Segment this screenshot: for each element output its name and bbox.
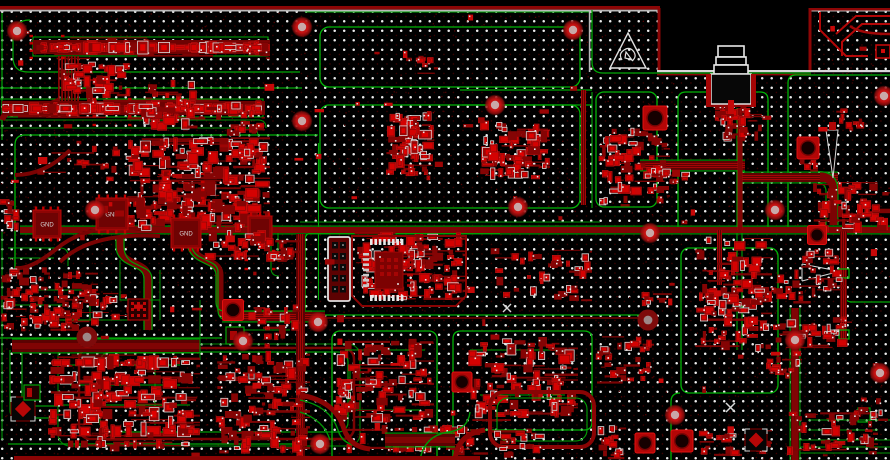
svg-text:GND: GND (179, 232, 193, 238)
svg-text:GND: GND (40, 223, 54, 229)
